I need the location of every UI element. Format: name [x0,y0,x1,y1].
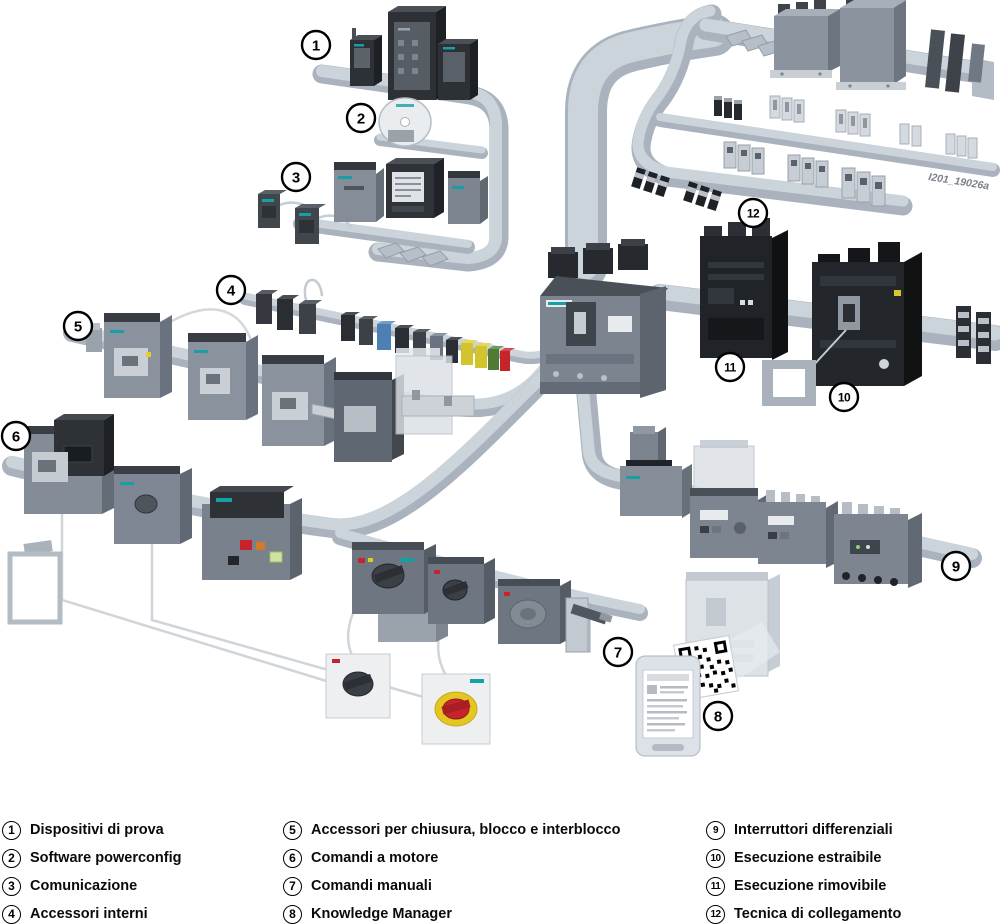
callout-7-badge: 7 [283,877,302,896]
rcd-devices [620,426,922,588]
legend-item-5: 5 Accessori per chiusura, blocco e inter… [283,816,620,844]
illustration-stage: 1 2 3 4 5 6 7 8 9 10 11 12 I201_19026a [0,0,1000,812]
callout-3-badge: 3 [2,877,21,896]
svg-text:6: 6 [12,429,20,446]
central-breaker [540,239,668,398]
svg-text:8: 8 [714,709,722,726]
legend-column-2: 5 Accessori per chiusura, blocco e inter… [283,816,620,924]
callout-marker-12: 12 [739,199,767,227]
legend-item-9: 9 Interruttori differenziali [706,816,901,844]
svg-text:9: 9 [952,559,960,576]
svg-text:1: 1 [312,38,320,55]
callout-1-badge: 1 [2,821,21,840]
callout-marker-1: 1 [302,31,330,59]
callout-2-badge: 2 [2,849,21,868]
callout-9-badge: 9 [706,821,725,840]
test-devices [350,6,478,100]
callout-11-badge: 11 [706,877,725,896]
callout-marker-2: 2 [347,104,375,132]
terminal-covers [726,0,906,90]
svg-text:10: 10 [838,391,851,405]
callout-marker-3: 3 [282,163,310,191]
callout-5-badge: 5 [283,821,302,840]
knowledge-manager-group [636,572,780,756]
plug-in-base [700,218,788,360]
legend-item-4: 4 Accessori interni [2,900,181,924]
legend-label-6: Comandi a motore [311,850,438,866]
svg-text:11: 11 [724,361,737,375]
legend-label-5: Accessori per chiusura, blocco e interbl… [311,822,620,838]
system-overview-illustration: 1 2 3 4 5 6 7 8 9 10 11 12 I201_19026a [0,0,1000,812]
svg-text:7: 7 [614,645,622,662]
legend-column-1: 1 Dispositivi di prova 2 Software powerc… [2,816,181,924]
product-overview-figure: 1 2 3 4 5 6 7 8 9 10 11 12 I201_19026a 1… [0,0,1000,924]
legend-label-1: Dispositivi di prova [30,822,164,838]
svg-text:12: 12 [747,207,760,221]
legend-item-1: 1 Dispositivi di prova [2,816,181,844]
legend-item-3: 3 Comunicazione [2,872,181,900]
legend-label-8: Knowledge Manager [311,906,452,922]
legend: 1 Dispositivi di prova 2 Software powerc… [0,816,1000,924]
callout-marker-4: 4 [217,276,245,304]
legend-label-11: Esecuzione rimovibile [734,878,886,894]
legend-item-8: 8 Knowledge Manager [283,900,620,924]
legend-label-12: Tecnica di collegamento [734,906,901,922]
software-disc [379,98,431,146]
legend-item-7: 7 Comandi manuali [283,872,620,900]
callout-marker-7: 7 [604,638,632,666]
legend-label-4: Accessori interni [30,906,148,922]
door-frame-outline [10,540,60,622]
rail-communication [300,221,468,247]
legend-label-9: Interruttori differenziali [734,822,893,838]
callout-marker-5: 5 [64,312,92,340]
svg-text:2: 2 [357,111,365,128]
draw-out-breaker [800,242,922,386]
callout-8-badge: 8 [283,905,302,924]
callout-marker-6: 6 [2,422,30,450]
callout-marker-8: 8 [704,702,732,730]
callout-marker-11: 11 [716,353,744,381]
legend-item-11: 11 Esecuzione rimovibile [706,872,901,900]
mounting-frame [762,360,816,406]
legend-item-2: 2 Software powerconfig [2,844,181,872]
svg-text:3: 3 [292,170,300,187]
legend-item-12: 12 Tecnica di collegamento [706,900,901,924]
legend-item-10: 10 Esecuzione estraibile [706,844,901,872]
callout-6-badge: 6 [283,849,302,868]
emergency-rotary-operator [326,654,490,744]
legend-label-2: Software powerconfig [30,850,181,866]
callout-marker-9: 9 [942,552,970,580]
callout-marker-10: 10 [830,383,858,411]
legend-label-10: Esecuzione estraibile [734,850,881,866]
svg-text:5: 5 [74,319,82,336]
callout-4-badge: 4 [2,905,21,924]
callout-12-badge: 12 [706,905,725,924]
legend-label-3: Comunicazione [30,878,137,894]
svg-text:4: 4 [227,283,236,300]
smartphone [636,656,700,756]
legend-label-7: Comandi manuali [311,878,432,894]
callout-10-badge: 10 [706,849,725,868]
legend-column-3: 9 Interruttori differenziali 10 Esecuzio… [706,816,901,924]
legend-item-6: 6 Comandi a motore [283,844,620,872]
